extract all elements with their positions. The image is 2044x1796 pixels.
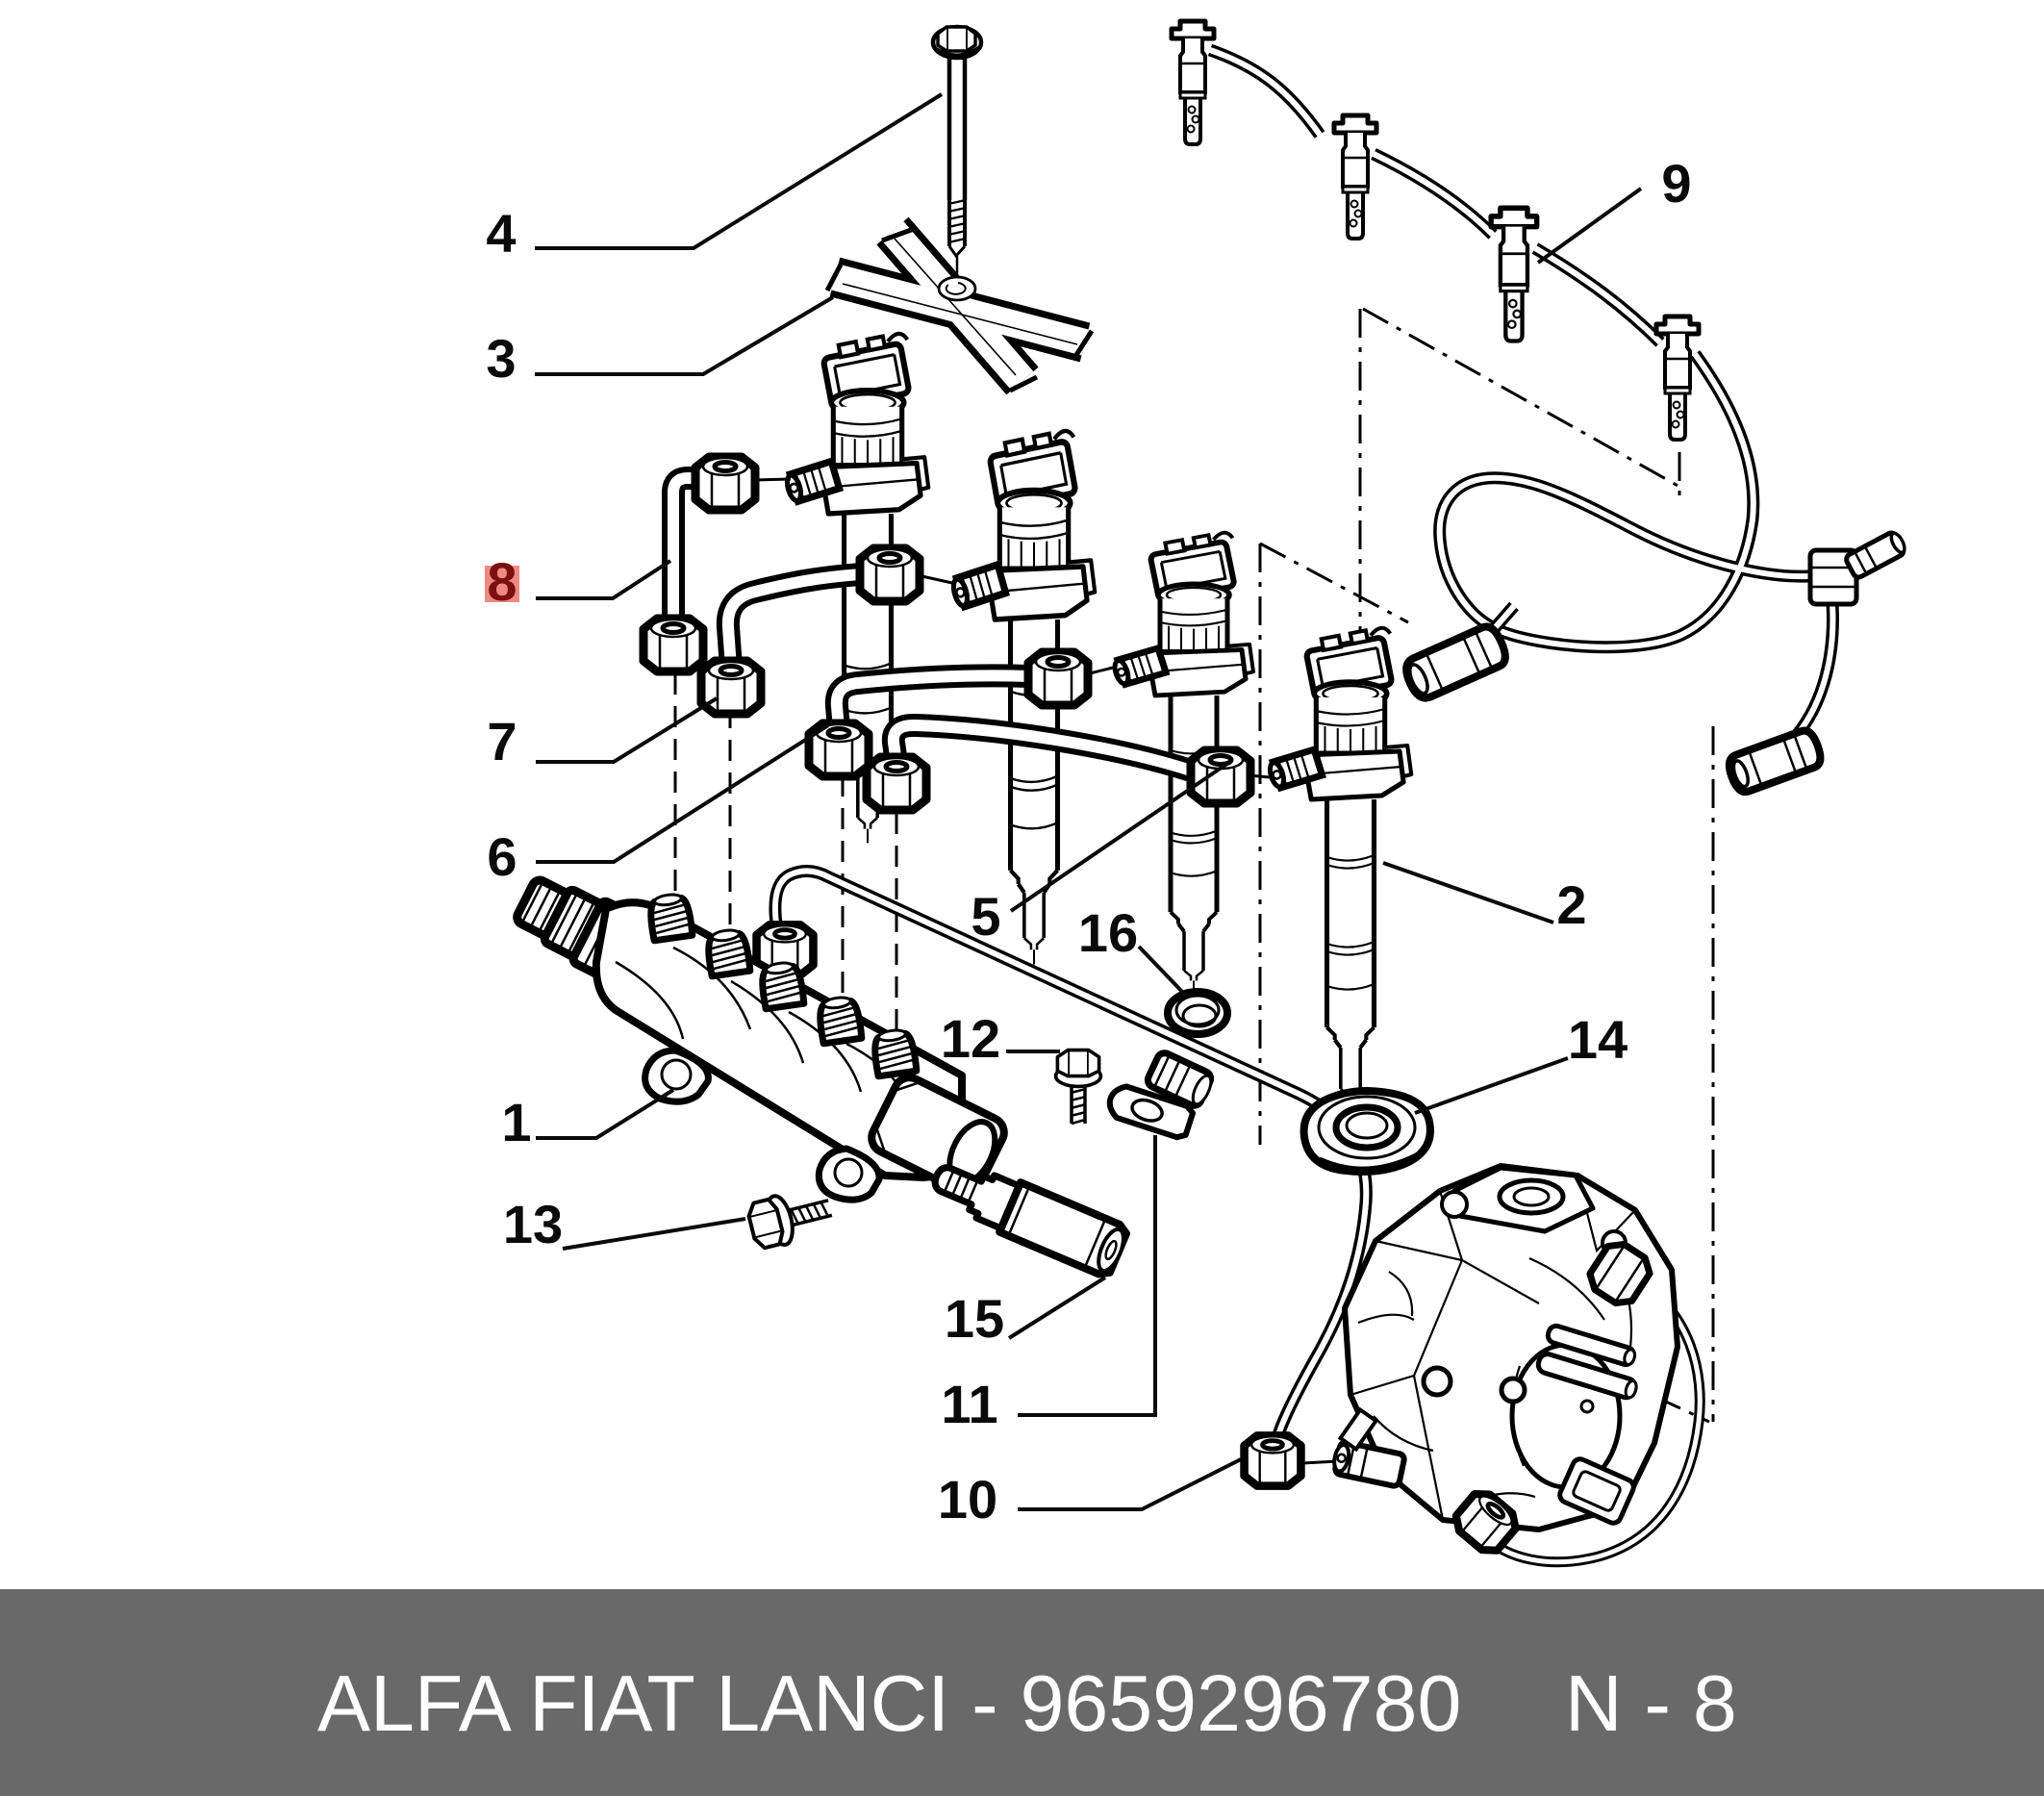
- svg-text:4: 4: [486, 203, 516, 264]
- svg-text:11: 11: [941, 1374, 997, 1434]
- svg-text:1: 1: [501, 1092, 531, 1152]
- svg-text:ALFA FIAT LANCI - 9659296780: ALFA FIAT LANCI - 9659296780: [317, 1659, 1461, 1748]
- svg-text:10: 10: [938, 1469, 997, 1530]
- svg-text:15: 15: [945, 1288, 1004, 1349]
- svg-text:13: 13: [503, 1194, 563, 1254]
- svg-text:3: 3: [486, 328, 516, 389]
- svg-text:9: 9: [1661, 153, 1691, 214]
- svg-text:5: 5: [971, 886, 1000, 947]
- svg-text:12: 12: [941, 1008, 1000, 1069]
- svg-text:7: 7: [487, 711, 517, 772]
- svg-text:N - 8: N - 8: [1565, 1659, 1737, 1748]
- svg-text:8: 8: [487, 551, 517, 612]
- svg-text:16: 16: [1078, 902, 1138, 963]
- svg-text:2: 2: [1556, 874, 1586, 935]
- svg-text:6: 6: [487, 826, 517, 887]
- svg-text:14: 14: [1568, 1009, 1628, 1070]
